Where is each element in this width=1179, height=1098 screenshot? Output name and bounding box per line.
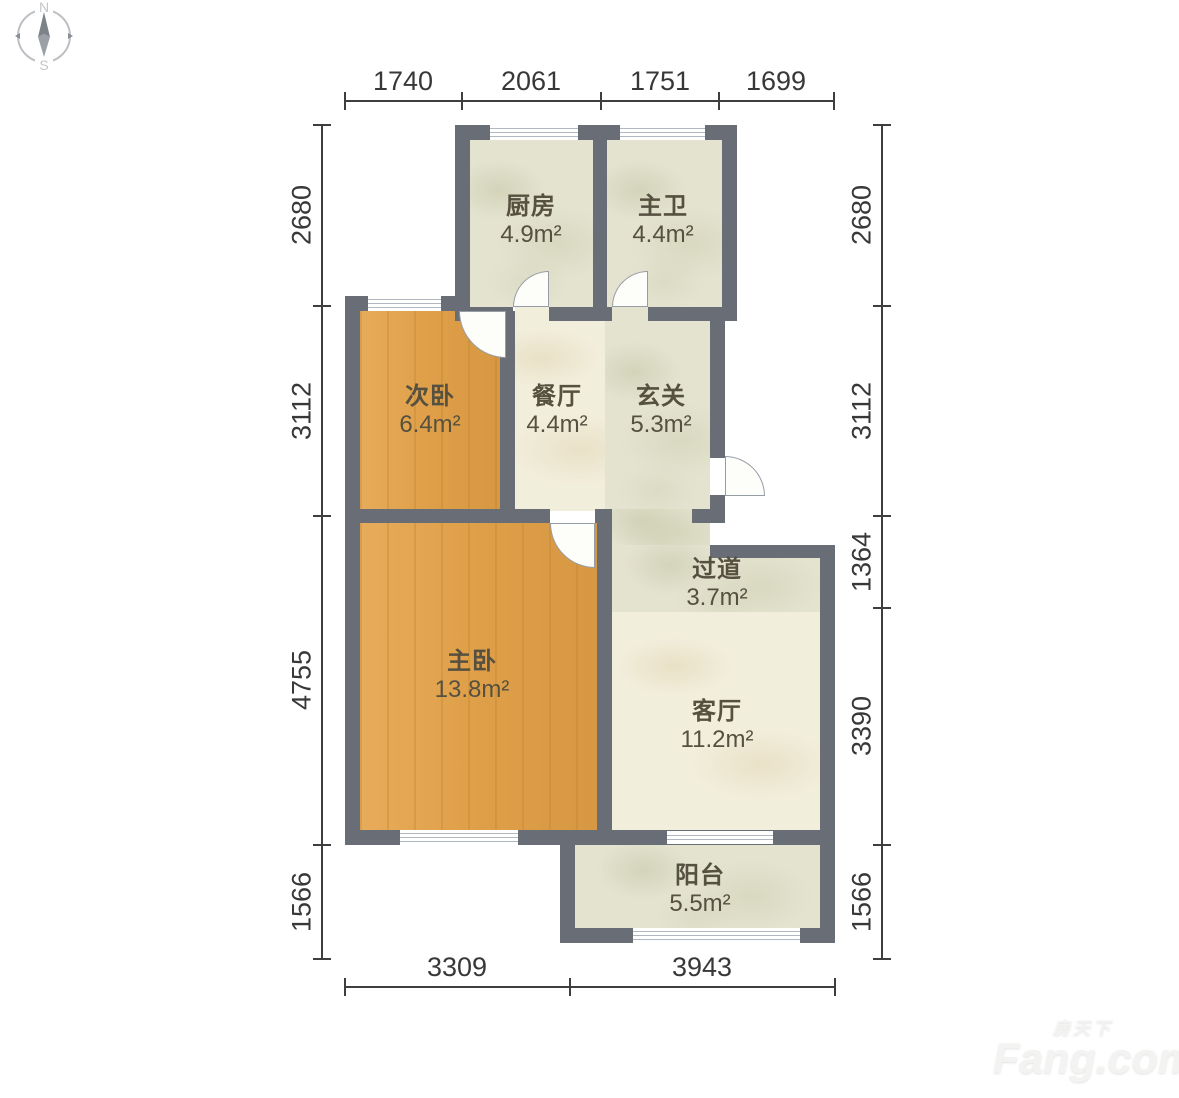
wall-segment (597, 509, 612, 845)
room-area: 4.4m² (526, 411, 587, 439)
room-area: 3.7m² (686, 584, 747, 612)
wall-segment (345, 296, 360, 845)
dimension-value: 3112 (847, 382, 878, 440)
wall-segment (710, 307, 725, 458)
wall-segment (345, 509, 550, 523)
dimension-value: 1740 (373, 66, 433, 97)
dimension-value: 1566 (847, 872, 878, 932)
dimension-value: 1751 (630, 66, 690, 97)
dimension-value: 1699 (746, 66, 806, 97)
room-name: 过道 (686, 556, 747, 584)
dimension-value: 1364 (847, 532, 878, 592)
window-kitchen (490, 125, 578, 140)
balcony-sliding-door (667, 831, 773, 844)
room-name: 客厅 (681, 698, 754, 726)
dimension-value: 3309 (427, 952, 487, 983)
window-master-bedroom (400, 830, 518, 845)
window-second-bedroom (368, 296, 441, 311)
dimension-value: 4755 (287, 650, 318, 710)
compass-icon: N S (4, 0, 82, 78)
room-area: 11.2m² (681, 726, 754, 754)
dimension-value: 3943 (672, 952, 732, 983)
compass-needle-north (38, 12, 50, 37)
floor-plan-image: N S (0, 0, 1179, 1098)
room-area: 6.4m² (399, 411, 460, 439)
room-name: 阳台 (669, 862, 730, 890)
room-label-master-bedroom: 主卧 13.8m² (435, 648, 510, 704)
dimension-value: 2061 (501, 66, 561, 97)
room-name: 主卫 (632, 193, 693, 221)
room-area: 5.3m² (630, 411, 691, 439)
dimension-value: 3112 (287, 382, 318, 440)
room-label-corridor: 过道 3.7m² (686, 556, 747, 612)
room-name: 餐厅 (526, 383, 587, 411)
room-name: 主卧 (435, 648, 510, 676)
window-master-bath (620, 125, 705, 140)
wall-segment (593, 140, 607, 307)
window-balcony (633, 928, 800, 943)
room-label-balcony: 阳台 5.5m² (669, 862, 730, 918)
dimension-value: 3390 (847, 696, 878, 756)
room-name: 次卧 (399, 383, 460, 411)
room-area: 4.4m² (632, 221, 693, 249)
wall-segment (455, 125, 470, 321)
room-area: 13.8m² (435, 676, 510, 704)
room-name: 厨房 (500, 193, 561, 221)
room-label-dining: 餐厅 4.4m² (526, 383, 587, 439)
room-label-master-bath: 主卫 4.4m² (632, 193, 693, 249)
dimension-value: 2680 (287, 185, 318, 245)
room-area: 5.5m² (669, 890, 730, 918)
room-name: 玄关 (630, 383, 691, 411)
watermark-site-en: Fang.com (993, 1038, 1175, 1080)
wall-segment (820, 545, 835, 943)
room-label-kitchen: 厨房 4.9m² (500, 193, 561, 249)
door-arc-entry (725, 456, 765, 496)
room-label-living: 客厅 11.2m² (681, 698, 754, 754)
dimension-value: 1566 (287, 872, 318, 932)
room-area: 4.9m² (500, 221, 561, 249)
wall-segment (692, 509, 725, 523)
wall-segment (549, 307, 612, 321)
room-label-entry-hall: 玄关 5.3m² (630, 383, 691, 439)
fang-watermark: 房天下 Fang.com (993, 1020, 1175, 1080)
dimension-value: 2680 (847, 185, 878, 245)
compass-south-label: S (39, 57, 48, 73)
wall-segment (722, 125, 737, 321)
room-label-second-bedroom: 次卧 6.4m² (399, 383, 460, 439)
compass-needle-south (38, 34, 50, 57)
